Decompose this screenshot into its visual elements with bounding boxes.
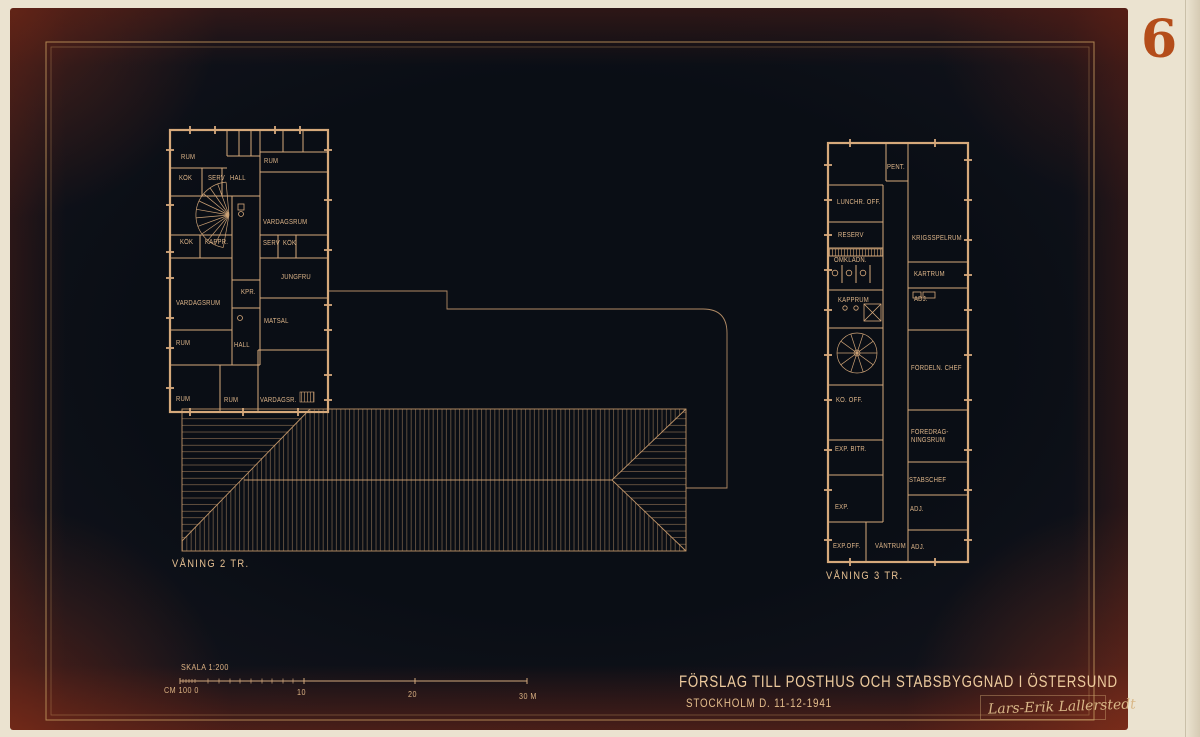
archival-drawing-sheet: RUMKÖKSERVHALLRUMVARDAGSRUMKÖKKAPPR.SERV… (0, 0, 1200, 737)
floor-plan-vaning-3 (824, 139, 972, 566)
balcony-hatch (300, 392, 314, 402)
floor-plan-vaning-2 (166, 126, 332, 416)
cloakroom-fixtures (843, 304, 881, 321)
pantry-fixtures (913, 292, 935, 298)
wc-fixtures (832, 270, 866, 276)
stair-fan (196, 182, 229, 247)
paper-edge-shade (1186, 0, 1200, 737)
drawing-layer (0, 0, 1200, 737)
roof-plan (182, 409, 686, 551)
scale-bar-drawing (180, 678, 527, 684)
bath-fixtures (238, 204, 245, 321)
window-marks (824, 139, 972, 566)
spiral-stair (837, 333, 877, 373)
window-marks (166, 126, 332, 416)
shelf-hatch (829, 249, 882, 256)
